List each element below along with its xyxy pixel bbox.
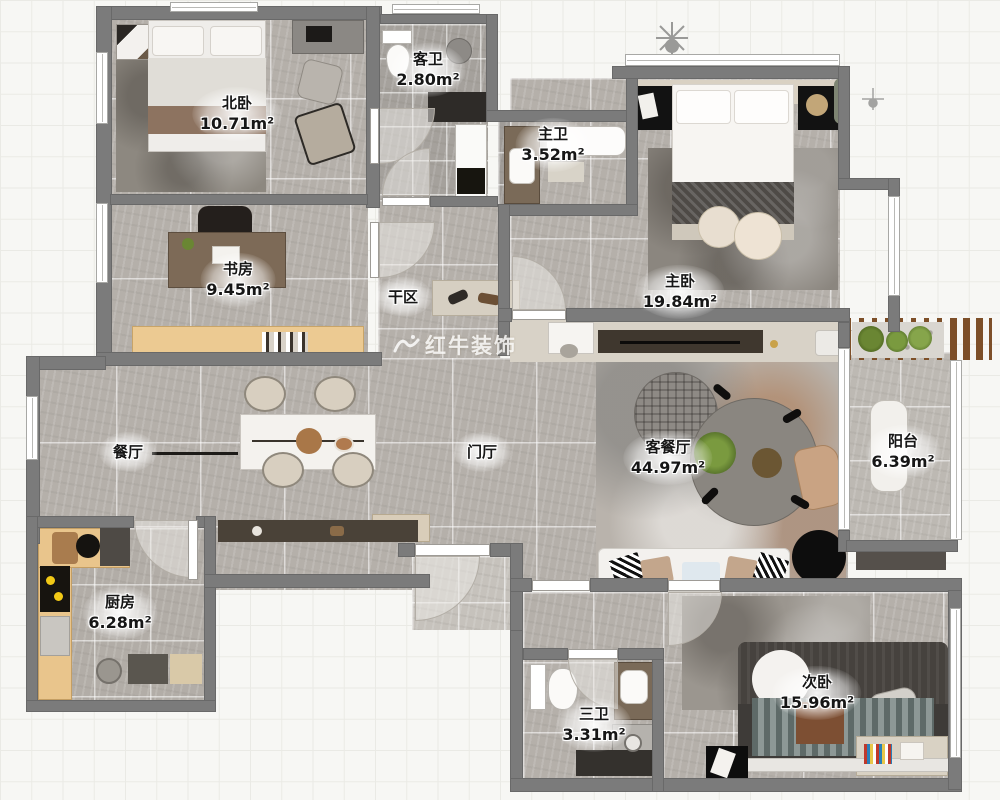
wall	[110, 194, 368, 205]
master-nightstand-right-basket	[806, 94, 828, 116]
master-pillow	[734, 90, 789, 124]
kitchen-base-cabinet	[170, 654, 202, 684]
desk-papers	[900, 742, 924, 760]
dining-floor-lamp	[152, 452, 238, 455]
wall	[652, 648, 664, 792]
wall	[498, 204, 638, 216]
room-name: 次卧	[780, 672, 854, 692]
wall	[523, 648, 568, 660]
room-area: 6.39m²	[871, 451, 934, 473]
wall	[430, 196, 498, 207]
room-area: 44.97m²	[631, 457, 705, 479]
room-label-study: 书房 9.45m²	[206, 259, 269, 301]
living-platter	[752, 448, 782, 478]
cooktop	[40, 566, 70, 612]
dry-area-cabinet-base	[457, 168, 485, 194]
window	[950, 360, 962, 540]
room-label-master-bedroom: 主卧 19.84m²	[643, 271, 717, 313]
room-label-second-bedroom: 次卧 15.96m²	[780, 672, 854, 714]
wall	[590, 578, 668, 592]
study-books	[262, 332, 308, 352]
room-name: 主卧	[643, 271, 717, 291]
door-second-bedroom	[668, 580, 720, 591]
wall	[204, 574, 430, 588]
wall	[96, 352, 382, 366]
door-north-bedroom	[370, 108, 379, 164]
tv-decor	[770, 340, 778, 348]
dining-plate	[334, 436, 354, 452]
wall	[26, 516, 134, 528]
hongniu-logo-icon	[392, 333, 420, 357]
room-area: 3.52m²	[521, 144, 584, 166]
dining-chair	[262, 452, 304, 488]
master-pillow	[676, 90, 731, 124]
dining-chair	[332, 452, 374, 488]
console-decor	[330, 526, 344, 536]
room-label-guest-bath: 客卫 2.80m²	[396, 49, 459, 91]
wall	[846, 540, 958, 552]
room-name: 餐厅	[113, 442, 143, 462]
window	[392, 4, 480, 14]
brand-watermark: 红牛装饰	[392, 330, 517, 360]
third-bath-mat	[576, 750, 656, 776]
master-pouf	[734, 212, 782, 260]
brand-watermark-text: 红牛装饰	[425, 330, 517, 360]
north-bedroom-pillow	[152, 26, 204, 56]
north-bedroom-nightstand	[116, 24, 152, 60]
room-area: 19.84m²	[643, 291, 717, 313]
door-master-bedroom	[512, 310, 566, 320]
kitchen-sink	[96, 658, 122, 684]
window	[888, 196, 900, 296]
room-name: 主卫	[521, 124, 584, 144]
desk-books	[864, 744, 892, 764]
room-name: 门厅	[467, 442, 497, 462]
room-name: 三卫	[562, 704, 625, 724]
window	[950, 608, 961, 758]
wall	[510, 630, 523, 792]
room-name: 书房	[206, 259, 269, 279]
kitchen-base-cabinet	[128, 654, 168, 684]
balcony-plant	[858, 326, 884, 352]
balcony-plant	[886, 330, 908, 352]
cutting-board	[52, 532, 78, 564]
dining-chair	[314, 376, 356, 412]
floor-plan: 北卧 10.71m² 客卫 2.80m² 主卫 3.52m² 主卧 19.84m…	[0, 0, 1000, 800]
room-label-kitchen: 厨房 6.28m²	[88, 592, 151, 634]
wall	[626, 62, 638, 212]
window	[96, 203, 108, 283]
wall	[26, 700, 216, 712]
room-name: 客卫	[396, 49, 459, 69]
room-label-foyer: 门厅	[467, 442, 497, 462]
dressing-stool	[560, 344, 578, 358]
wall	[486, 14, 498, 118]
flame-icon	[54, 592, 63, 601]
balcony-plant	[908, 326, 932, 350]
window	[26, 396, 38, 460]
room-name: 干区	[388, 287, 418, 307]
room-area: 3.31m²	[562, 724, 625, 746]
entry-door	[415, 544, 490, 556]
console-decor	[252, 526, 262, 536]
wall	[498, 308, 512, 322]
hallway-console	[218, 520, 418, 542]
wall	[204, 516, 216, 712]
pergola-slats	[952, 318, 992, 360]
wall	[510, 778, 962, 792]
dining-chair	[244, 376, 286, 412]
window	[170, 2, 258, 12]
second-bedroom-bench	[730, 758, 952, 772]
room-label-balcony: 阳台 6.39m²	[871, 431, 934, 473]
tv-screen	[620, 341, 740, 344]
kitchen-tall-cabinet	[100, 528, 130, 566]
room-label-dry-area: 干区	[388, 287, 418, 307]
room-label-north-bedroom: 北卧 10.71m²	[200, 93, 274, 135]
door-study	[370, 222, 379, 278]
guest-bath-vanity	[428, 92, 486, 122]
room-label-living-dining: 客餐厅 44.97m²	[631, 437, 705, 479]
wall	[398, 543, 415, 557]
wall	[720, 578, 962, 592]
door-bottom-corridor	[532, 580, 590, 591]
wall	[838, 66, 850, 188]
dining-centerpiece	[296, 428, 322, 454]
third-bath-toilet-tank	[530, 664, 546, 710]
wall	[366, 6, 380, 208]
room-area: 10.71m²	[200, 113, 274, 135]
wall	[380, 14, 498, 24]
room-label-third-bath: 三卫 3.31m²	[562, 704, 625, 746]
laptop-icon	[306, 26, 332, 42]
room-name: 客餐厅	[631, 437, 705, 457]
room-name: 北卧	[200, 93, 274, 113]
room-name: 厨房	[88, 592, 151, 612]
room-label-dining: 餐厅	[113, 442, 143, 462]
room-name: 阳台	[871, 431, 934, 451]
door-third-bath	[568, 649, 618, 659]
wall	[838, 322, 850, 348]
door-kitchen	[188, 520, 198, 580]
wall	[510, 578, 532, 592]
guest-bath-toilet-tank	[382, 30, 412, 44]
flame-icon	[46, 576, 55, 585]
window	[838, 348, 850, 530]
third-bath-sink	[620, 670, 648, 704]
north-bedroom-pillow	[210, 26, 262, 56]
ceiling-light-icon	[860, 86, 886, 112]
window	[96, 52, 108, 124]
wall	[618, 648, 664, 660]
room-area: 6.28m²	[88, 612, 151, 634]
room-area: 2.80m²	[396, 69, 459, 91]
wall	[26, 516, 38, 712]
dishwasher	[40, 616, 70, 656]
study-plant	[182, 238, 194, 250]
room-label-master-bath: 主卫 3.52m²	[521, 124, 584, 166]
window	[625, 54, 840, 66]
room-area: 9.45m²	[206, 279, 269, 301]
wok	[76, 534, 100, 558]
wall	[612, 66, 850, 79]
door-guest-bath	[382, 197, 430, 206]
room-area: 15.96m²	[780, 692, 854, 714]
